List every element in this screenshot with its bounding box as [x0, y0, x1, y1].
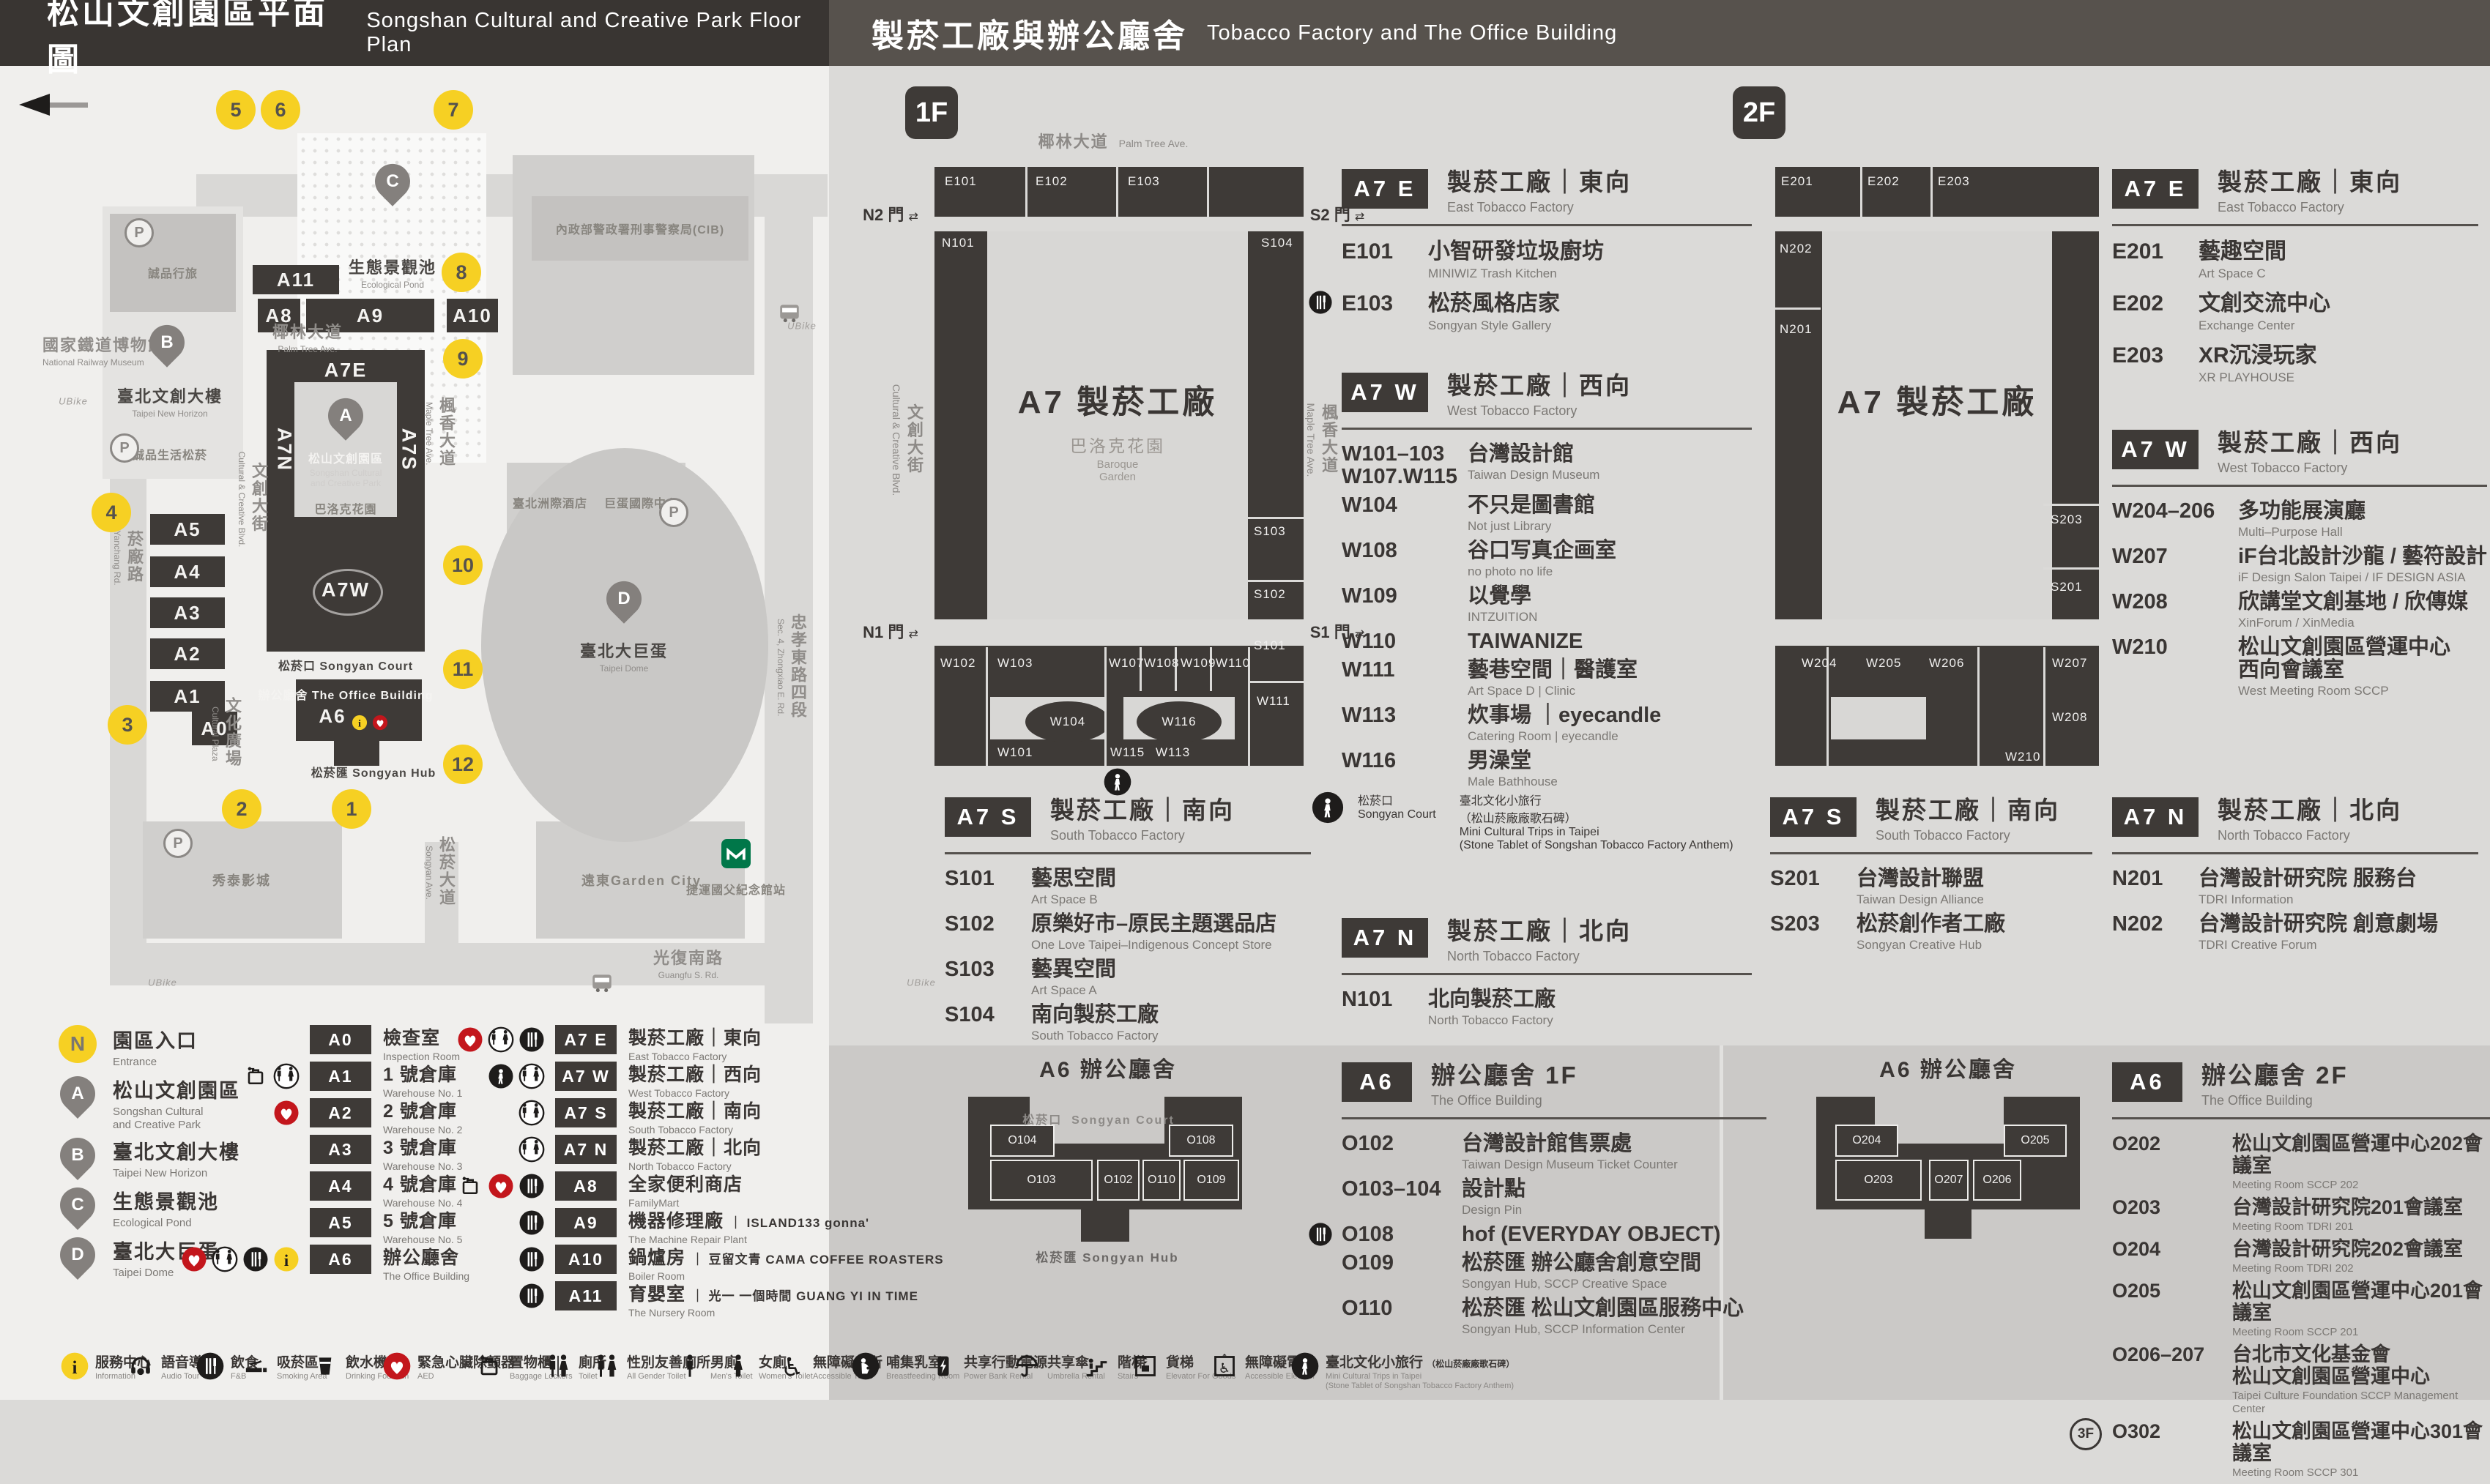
- room-w101: W101: [997, 745, 1033, 760]
- room-name-en: Art Space C: [2199, 266, 2286, 281]
- room-code: S104: [945, 1004, 1031, 1043]
- map-entrance-2: 2: [222, 789, 261, 829]
- ubike-icon: UBike: [907, 977, 936, 988]
- plan-2f-a7-label: A7 製菸工廠: [1837, 376, 2037, 422]
- map-entrance-6: 6: [261, 90, 300, 130]
- map-entrance-9: 9: [443, 339, 483, 379]
- list-a7s-1f: A7 S 製菸工廠｜南向 South Tobacco Factory S101 …: [945, 791, 1311, 1049]
- room-name-zh: 台灣設計館售票處: [1462, 1133, 1678, 1155]
- room-code: S102: [945, 913, 1031, 952]
- room-w107: W107: [1109, 656, 1144, 671]
- room-name-en: Meeting Room TDRI 201: [2232, 1220, 2463, 1234]
- room-code: E202: [2112, 291, 2199, 333]
- room-code: E203: [2112, 343, 2199, 385]
- list-a7n-1f: A7 N 製菸工廠｜北向 North Tobacco Factory N101 …: [1342, 911, 1752, 1034]
- map-label-pond-label: 生態景觀池Ecological Pond: [349, 255, 436, 290]
- room-w113: W113: [1156, 745, 1190, 760]
- room-name-en: Not just Library: [1468, 519, 1595, 534]
- section-rule: [1342, 973, 1752, 975]
- list-a7w-2f-entry-W208: W208 欣講堂文創基地 / 欣傳媒XinForum / XinMedia: [2112, 591, 2487, 630]
- room-e102: E102: [1036, 174, 1068, 189]
- gate-S1門: S1 門 ⇄: [1310, 619, 1365, 643]
- map-label-dome-label: 臺北大巨蛋Taipei Dome: [580, 638, 668, 674]
- legend-A: A松山文創園區Songshan Cultural and Creative Pa…: [59, 1075, 240, 1132]
- map-entrance-1: 1: [332, 789, 371, 829]
- section-chip: A7 E: [2112, 169, 2199, 209]
- room-name-en: Multi–Purpose Hall: [2238, 525, 2365, 540]
- map-label-maple-tree-ave: 楓香大道Maple Tree Ave.: [424, 397, 458, 467]
- toiletC-icon: [488, 1026, 514, 1053]
- room-w102: W102: [940, 656, 975, 671]
- section-chip: A7 S: [945, 797, 1031, 837]
- court-icon: [1311, 791, 1345, 852]
- section-rule: [2112, 224, 2478, 226]
- list-a6-2f-header: A6 辦公廳舍 2F The Office Building: [2112, 1056, 2490, 1108]
- room-e201: E201: [1781, 174, 1813, 189]
- list-a7n-2f-header: A7 N 製菸工廠｜北向 North Tobacco Factory: [2112, 791, 2478, 843]
- room-code: E101: [1342, 239, 1428, 281]
- legend-a2-label: 2 號倉庫Warehouse No. 2: [383, 1097, 462, 1136]
- room-w109: W109: [1181, 656, 1216, 671]
- compass-icon: [19, 94, 50, 116]
- room-code: O206–207: [2112, 1343, 2232, 1416]
- section-title-en: East Tobacco Factory: [1447, 200, 1632, 215]
- map-label-baroque-label: 巴洛克花園: [314, 499, 376, 517]
- room-code: W108: [1342, 540, 1468, 579]
- list-a7w-1f-entry-W113: W113 炊事場 ｜eyecandleCatering Room | eyeca…: [1342, 704, 1752, 744]
- strip-court: 臺北文化小旅行 （松山菸廠廠歌石碑）Mini Cultural Trips in…: [1290, 1351, 1515, 1391]
- list-a7w-1f-entry-W104: W104 不只是圖書館Not just Library: [1342, 494, 1752, 534]
- room-n202: N202: [1780, 242, 1813, 256]
- room-code: N101: [1342, 988, 1428, 1028]
- room-code: E201: [2112, 239, 2199, 281]
- parking-icon: P: [124, 218, 154, 247]
- aed-icon: [382, 1351, 412, 1381]
- room-o206: O206: [1973, 1160, 2021, 1201]
- section-title-zh: 辦公廳舍 2F: [2201, 1056, 2349, 1091]
- room-o203: O203: [1835, 1160, 1922, 1201]
- room-name-en: Meeting Room SCCP 201: [2232, 1326, 2490, 1339]
- legend-a8-label: 全家便利商店FamilyMart: [628, 1170, 743, 1209]
- list-a6-2f-entry-O204: O204 台灣設計研究院202會議室Meeting Room TDRI 202: [2112, 1238, 2490, 1275]
- room-name-en: Songyan Hub, SCCP Information Center: [1462, 1322, 1744, 1337]
- plan-sep: [1930, 167, 1933, 217]
- office-hub-label: 松菸匯 Songyan Hub: [1036, 1248, 1178, 1266]
- room-n101: N101: [942, 236, 975, 250]
- section-title-en: The Office Building: [2201, 1093, 2349, 1108]
- room-o103: O103: [990, 1160, 1093, 1201]
- room-s104: S104: [1261, 236, 1293, 250]
- legend-C: C生態景觀池Ecological Pond: [59, 1186, 219, 1230]
- section-title-en: West Tobacco Factory: [2218, 461, 2402, 476]
- room-name-zh: XR沉浸玩家: [2199, 343, 2317, 368]
- aed-icon: [273, 1100, 300, 1126]
- section-title-zh: 製菸工廠｜北向: [1447, 911, 1632, 947]
- section-chip: A6: [2112, 1062, 2182, 1102]
- access-icon: ♿: [778, 1351, 807, 1381]
- room-name-en: Taiwan Design Museum: [1468, 468, 1599, 482]
- plan-sep: [1116, 167, 1118, 217]
- cup-icon: [311, 1351, 340, 1381]
- list-a7e-2f-entry-E203: E203 XR沉浸玩家XR PLAYHOUSE: [2112, 343, 2478, 385]
- room-name-zh: 松菸匯 松山文創園區服務中心: [1462, 1297, 1744, 1320]
- plan-sep: [1104, 647, 1107, 766]
- bus-icon: [590, 970, 614, 995]
- room-code: O109: [1342, 1252, 1462, 1291]
- food-icon: [519, 1026, 545, 1053]
- mrt-logo-icon: [721, 839, 751, 872]
- map-pin-D: D: [606, 581, 642, 616]
- legend-a4-chip: A4: [310, 1171, 371, 1201]
- list-a6-2f-entry-O205: O205 松山文創園區營運中心201會議室Meeting Room SCCP 2…: [2112, 1280, 2490, 1339]
- toiletC-icon: [519, 1100, 545, 1126]
- list-a7e-2f: A7 E 製菸工廠｜東向 East Tobacco Factory E201 藝…: [2112, 163, 2478, 395]
- breastfeed-icon: [851, 1351, 880, 1381]
- bus-stop-icon: [590, 970, 614, 999]
- room-code: W208: [2112, 591, 2238, 630]
- power-icon: [929, 1351, 958, 1381]
- plan-2f-wcourt: [1831, 697, 1926, 739]
- legend-a3-chip: A3: [310, 1135, 371, 1164]
- map-building-a2: A2: [150, 638, 225, 669]
- ubike-icon: UBike: [787, 321, 817, 332]
- room-name-en: Meeting Room TDRI 202: [2232, 1262, 2463, 1275]
- legend-a2-chip: A2: [310, 1098, 371, 1127]
- room-code: W116: [1342, 750, 1468, 789]
- court-icon: [488, 1063, 514, 1089]
- gate-S2門: S2 門 ⇄: [1310, 202, 1365, 225]
- plan-sep: [1248, 580, 1304, 582]
- room-code: W109: [1342, 585, 1468, 624]
- section-rule: [1342, 1117, 1766, 1119]
- room-name-zh: 設計點: [1462, 1178, 1525, 1201]
- room-code: O202: [2112, 1133, 2232, 1192]
- map-label-palm-tree-ave: 椰林大道Palm Tree Ave.: [272, 319, 343, 354]
- map-pin-C: C: [375, 164, 410, 199]
- section-title-en: East Tobacco Factory: [2218, 200, 2402, 215]
- map-label-cc-blvd: 文創大街Cultural & Creative Blvd.: [237, 449, 270, 548]
- room-name-zh: 台灣設計研究院 服務台: [2199, 868, 2417, 890]
- map-label-eslite-spectrum: 誠品生活松菸: [133, 445, 207, 463]
- legend-a5-label: 5 號倉庫Warehouse No. 5: [383, 1207, 462, 1245]
- map-building-a11: A11: [253, 265, 339, 294]
- legend-a1-chip: A1: [310, 1062, 371, 1091]
- list-a7w-1f: A7 W 製菸工廠｜西向 West Tobacco Factory W101–1…: [1342, 366, 1752, 795]
- aed-icon: [181, 1246, 207, 1272]
- room-name-en: Art Space D | Clinic: [1468, 684, 1638, 698]
- room-w205: W205: [1866, 656, 1901, 671]
- map-entrance-7: 7: [434, 90, 473, 130]
- list-a7s-1f-entry-S101: S101 藝思空間Art Space B: [945, 868, 1311, 907]
- room-name-zh: 欣講堂文創基地 / 欣傳媒: [2238, 591, 2468, 614]
- plan-2f-street-top: [1775, 217, 2099, 231]
- map-label-a7n-map: A7N: [273, 428, 296, 471]
- woman-icon: [724, 1351, 753, 1381]
- legend-a7n-chip: A7 N: [555, 1135, 617, 1164]
- legend-a0-label: 檢查室Inspection Room: [383, 1023, 460, 1062]
- floor-badge-1f: 1F: [905, 86, 958, 139]
- section-rule: [945, 852, 1311, 854]
- map-label-songyan-ave: 松菸大道Songyan Ave.: [424, 836, 458, 906]
- audio-icon: [126, 1351, 155, 1381]
- plan-sep: [1248, 628, 1304, 630]
- toiletC-icon: [519, 1136, 545, 1163]
- list-a7e-1f: A7 E 製菸工廠｜東向 East Tobacco Factory E101 小…: [1342, 163, 1752, 343]
- room-name-zh: 松山文創園區營運中心202會議室: [2232, 1133, 2490, 1177]
- legend-a8-icons: [464, 1173, 545, 1199]
- section-title-zh: 製菸工廠｜南向: [1876, 791, 2060, 826]
- plan-1f-a7-label: A7 製菸工廠: [1018, 376, 1217, 422]
- section-chip: A7 S: [1770, 797, 1857, 837]
- legend-a7e-icons: [464, 1026, 545, 1053]
- room-code: N201: [2112, 868, 2199, 907]
- food-icon: [519, 1173, 545, 1199]
- ubike-icon: UBike: [148, 977, 177, 988]
- map-label-garden-city: 遠東Garden City: [581, 870, 702, 890]
- legend-a7s-icons: [464, 1100, 545, 1126]
- room-name-zh: iF台北設計沙龍 / 藝符設計: [2238, 545, 2487, 568]
- room-name-en: Songyan Style Gallery: [1428, 318, 1560, 333]
- toiletC-icon: [273, 1063, 300, 1089]
- room-name-zh: 文創交流中心: [2199, 291, 2330, 316]
- room-o207: O207: [1929, 1160, 1969, 1201]
- room-name-en: Meeting Room SCCP 202: [2232, 1179, 2490, 1192]
- section-rule: [2112, 1117, 2490, 1119]
- list-a7n-2f: A7 N 製菸工廠｜北向 North Tobacco Factory N201 …: [2112, 791, 2478, 958]
- map-label-songyan-court-map: 松菸口 Songyan Court: [278, 656, 413, 674]
- baggage-icon: [475, 1351, 504, 1381]
- map-label-yanchang-rd: 菸廠路Yanchang Rd.: [112, 527, 146, 585]
- room-name-en: Art Space B: [1031, 892, 1116, 907]
- liftgoods-icon: [1131, 1351, 1160, 1381]
- list-a7s-2f-header: A7 S 製菸工廠｜南向 South Tobacco Factory: [1770, 791, 2092, 843]
- list-a7n-1f-header: A7 N 製菸工廠｜北向 North Tobacco Factory: [1342, 911, 1752, 964]
- room-code: N202: [2112, 913, 2199, 952]
- list-a6-1f: A6 辦公廳舍 1F The Office Building O102 台灣設計…: [1342, 1056, 1766, 1343]
- room-code: W101–103 W107.W115: [1342, 443, 1468, 488]
- room-code: O108: [1342, 1223, 1462, 1246]
- room-name-zh: 台北市文化基金會 松山文創園區營運中心: [2232, 1343, 2490, 1387]
- legend-a7n-icons: [464, 1136, 545, 1163]
- room-n201: N201: [1780, 322, 1813, 337]
- room-name-zh: 藝巷空間｜醫護室: [1468, 659, 1638, 682]
- section-rule: [1342, 224, 1752, 226]
- map-label-intercontinental: 臺北洲際酒店: [513, 493, 587, 511]
- room-code: S201: [1770, 868, 1857, 907]
- section-title-en: North Tobacco Factory: [1447, 949, 1632, 964]
- section-title-zh: 辦公廳舍 1F: [1431, 1056, 1578, 1091]
- right-header-title-zh: 製菸工廠與辦公廳舍: [871, 10, 1188, 56]
- map-label-mrt-label: 捷運國父紀念館站: [686, 880, 786, 898]
- map-label-eslite-hotel: 誠品行旅: [148, 264, 198, 281]
- map-label-a7e-map: A7E: [324, 359, 368, 382]
- gate-N2門: N2 門 ⇄: [863, 202, 918, 225]
- court-icon: [1103, 767, 1132, 797]
- list-a7w-2f: A7 W 製菸工廠｜西向 West Tobacco Factory W204–2…: [2112, 423, 2487, 704]
- court-icon: [1290, 1351, 1320, 1381]
- right-header-title-en: Tobacco Factory and The Office Building: [1207, 21, 1617, 45]
- baggage-icon: [457, 1173, 483, 1199]
- left-header: 松山文創園區平面圖 Songshan Cultural and Creative…: [0, 0, 829, 66]
- food-icon: [519, 1209, 545, 1236]
- room-name-en: no photo no life: [1468, 564, 1616, 579]
- room-name-en: North Tobacco Factory: [1428, 1013, 1556, 1028]
- room-code: W210: [2112, 636, 2238, 698]
- list-a7w-1f-entry-W110: W110 TAIWANIZE: [1342, 630, 1752, 653]
- room-name-zh: hof (EVERYDAY OBJECT): [1462, 1223, 1720, 1246]
- room-name-zh: 不只是圖書館: [1468, 494, 1595, 517]
- map-pin-B: B: [149, 325, 185, 360]
- list-a6-1f-entry-O110: O110 松菸匯 松山文創園區服務中心Songyan Hub, SCCP Inf…: [1342, 1297, 1766, 1337]
- room-code: W111: [1342, 659, 1468, 698]
- room-code: S103: [945, 958, 1031, 998]
- room-s101: S101: [1254, 638, 1286, 653]
- plan-1f-courtyard: [987, 231, 1248, 619]
- room-code: W204–206: [2112, 500, 2238, 540]
- section-rule: [2112, 852, 2478, 854]
- room-name-en: iF Design Salon Taipei / IF DESIGN ASIA: [2238, 570, 2487, 585]
- map-building-a5: A5: [150, 514, 225, 545]
- room-name-en: Songyan Creative Hub: [1857, 938, 2005, 952]
- room-w210: W210: [2005, 750, 2040, 764]
- list-a7s-2f: A7 S 製菸工廠｜南向 South Tobacco Factory S201 …: [1770, 791, 2092, 958]
- legend-a7n-label: 製菸工廠｜北向North Tobacco Factory: [628, 1133, 762, 1172]
- songyan-court-gate-icon: [1103, 767, 1132, 800]
- list-a6-2f-entry-O302: 3FO302 松山文創園區營運中心301會議室Meeting Room SCCP…: [2112, 1420, 2490, 1480]
- plan-1f-street-top: 椰林大道Palm Tree Ave.: [1038, 129, 1189, 152]
- room-name-zh: 藝異空間: [1031, 958, 1116, 981]
- svg-text:i: i: [358, 718, 361, 729]
- legend-a11-label: 育嬰室 ｜ 光一 一個時間 GUANG YI IN TIMEThe Nurser…: [628, 1280, 918, 1319]
- food-icon: [519, 1283, 545, 1309]
- legend-a6-icons: i: [219, 1246, 300, 1272]
- map-label-showtime: 秀泰影城: [212, 870, 271, 890]
- map-label-a7s-map: A7S: [398, 428, 420, 471]
- room-code: S203: [1770, 913, 1857, 952]
- legend-a10-label: 鍋爐房 ｜ 豆留文青 CAMA COFFEE ROASTERSBoiler Ro…: [628, 1243, 944, 1282]
- list-a7w-1f-entry-W111: W111 藝巷空間｜醫護室Art Space D | Clinic: [1342, 659, 1752, 698]
- room-name-zh: 松菸風格店家: [1428, 291, 1560, 316]
- liftaccess-icon: ♿: [1210, 1351, 1239, 1381]
- map-label-railway-museum: 國家鐵道博物館National Railway Museum: [42, 332, 166, 368]
- section-title-en: The Office Building: [1431, 1093, 1578, 1108]
- room-code: E103: [1342, 291, 1428, 333]
- room-w206: W206: [1929, 656, 1964, 671]
- room-name-zh: 松山文創園區營運中心 西向會議室: [2238, 636, 2450, 682]
- legend-a7w-label: 製菸工廠｜西向West Tobacco Factory: [628, 1060, 762, 1099]
- room-name-zh: 台灣設計研究院201會議室: [2232, 1196, 2463, 1218]
- room-code: O205: [2112, 1280, 2232, 1339]
- room-name-en: One Love Taipei–Indigenous Concept Store: [1031, 938, 1276, 952]
- parking-icon: P: [659, 498, 688, 527]
- map-building-a4: A4: [150, 556, 225, 587]
- list-a6-2f: A6 辦公廳舍 2F The Office Building O202 松山文創…: [2112, 1056, 2490, 1484]
- map-label-park-label: 松山文創園區Songshan Cultural and Creative Par…: [308, 449, 383, 488]
- map-label-guangfu-rd: 光復南路Guangfu S. Rd.: [653, 945, 724, 980]
- legend-a7s-chip: A7 S: [555, 1098, 617, 1127]
- room-name-zh: 北向製菸工廠: [1428, 988, 1556, 1011]
- parking-icon: P: [163, 829, 193, 858]
- mrt-icon: [721, 839, 751, 868]
- info-icon: i: [60, 1351, 89, 1381]
- room-e101: E101: [945, 174, 977, 189]
- section-title-zh: 製菸工廠｜北向: [2218, 791, 2402, 826]
- room-name-zh: 谷口写真企画室: [1468, 540, 1616, 562]
- list-a7n-1f-entry-N101: N101 北向製菸工廠North Tobacco Factory: [1342, 988, 1752, 1028]
- legend-a9-label: 機器修理廠 ｜ ISLAND133 gonna'The Machine Repa…: [628, 1207, 869, 1245]
- plan-1f-street-0: 文創大街Cultural & Creative Blvd.: [891, 383, 926, 496]
- toilet-icon: [543, 1351, 573, 1381]
- food-icon: [519, 1246, 545, 1272]
- room-name-zh: TAIWANIZE: [1468, 630, 1583, 653]
- food-icon: [242, 1246, 269, 1272]
- umbrella-icon: [1012, 1351, 1041, 1381]
- list-a7s-2f-entry-S203: S203 松菸創作者工廠Songyan Creative Hub: [1770, 913, 2092, 952]
- map-entrance-12: 12: [443, 745, 483, 784]
- room-name-en: Exchange Center: [2199, 318, 2330, 333]
- office-1f-stub: [1081, 1209, 1129, 1242]
- room-name-zh: 台灣設計研究院202會議室: [2232, 1238, 2463, 1260]
- plan-2f-courtyard: [1822, 231, 2052, 619]
- office-plan-title-o2: A6 辦公廳舍: [1879, 1051, 2017, 1084]
- legend-a1-label: 1 號倉庫Warehouse No. 1: [383, 1060, 462, 1099]
- room-name-zh: 原樂好市–原民主題選品店: [1031, 913, 1276, 936]
- room-code: W207: [2112, 545, 2238, 585]
- map-pin-A: A: [328, 398, 363, 433]
- map-entrance-5: 5: [216, 90, 256, 130]
- legend-a7s-label: 製菸工廠｜南向South Tobacco Factory: [628, 1097, 762, 1136]
- right-header: 製菸工廠與辦公廳舍 Tobacco Factory and The Office…: [829, 0, 2490, 66]
- room-name-en: TDRI Information: [2199, 892, 2417, 907]
- list-a7e-2f-entry-E202: E202 文創交流中心Exchange Center: [2112, 291, 2478, 333]
- room-o205: O205: [2004, 1125, 2067, 1157]
- food-icon: [1308, 290, 1333, 318]
- room-o108: O108: [1169, 1125, 1233, 1157]
- room-name-zh: 松菸創作者工廠: [1857, 913, 2005, 936]
- pin-D-icon: D: [59, 1236, 97, 1277]
- plan-sep: [2043, 567, 2099, 570]
- room-name-zh: 南向製菸工廠: [1031, 1004, 1159, 1026]
- room-s201: S201: [2051, 580, 2083, 594]
- room-name-en: Design Pin: [1462, 1203, 1525, 1218]
- section-chip: A7 N: [2112, 797, 2199, 837]
- room-name-zh: 台灣設計館: [1468, 443, 1599, 466]
- pin-A-icon: A: [59, 1075, 97, 1116]
- list-a7s-1f-entry-S103: S103 藝異空間Art Space A: [945, 958, 1311, 998]
- map-entrance-10: 10: [443, 545, 483, 585]
- room-name-zh: 炊事場 ｜eyecandle: [1468, 704, 1661, 727]
- stairs-icon: [1082, 1351, 1112, 1381]
- room-name-en: Songyan Hub, SCCP Creative Space: [1462, 1277, 1701, 1291]
- room-w208: W208: [2052, 710, 2087, 725]
- room-name-en: South Tobacco Factory: [1031, 1029, 1159, 1043]
- room-w115: W115: [1110, 745, 1145, 760]
- room-name-zh: 藝趣空間: [2199, 239, 2286, 264]
- svg-text:♿: ♿: [1219, 1360, 1230, 1376]
- room-w116: W116: [1162, 715, 1196, 729]
- list-a6-1f-entry-O102: O102 台灣設計館售票處Taiwan Design Museum Ticket…: [1342, 1133, 1766, 1172]
- map-label-office-map: 辦公廳舍 The Office Building: [258, 685, 433, 703]
- room-o102: O102: [1097, 1160, 1140, 1201]
- section-rule: [1770, 852, 2092, 854]
- map-aed-icon: [372, 715, 388, 734]
- legend-a0-chip: A0: [310, 1025, 371, 1054]
- room-name-zh: 多功能展演廳: [2238, 500, 2365, 523]
- section-rule: [2112, 485, 2487, 487]
- section-title-zh: 製菸工廠｜西向: [2218, 423, 2402, 458]
- floor-3f-marker: 3F: [2070, 1418, 2102, 1450]
- toiletC-icon: [212, 1246, 238, 1272]
